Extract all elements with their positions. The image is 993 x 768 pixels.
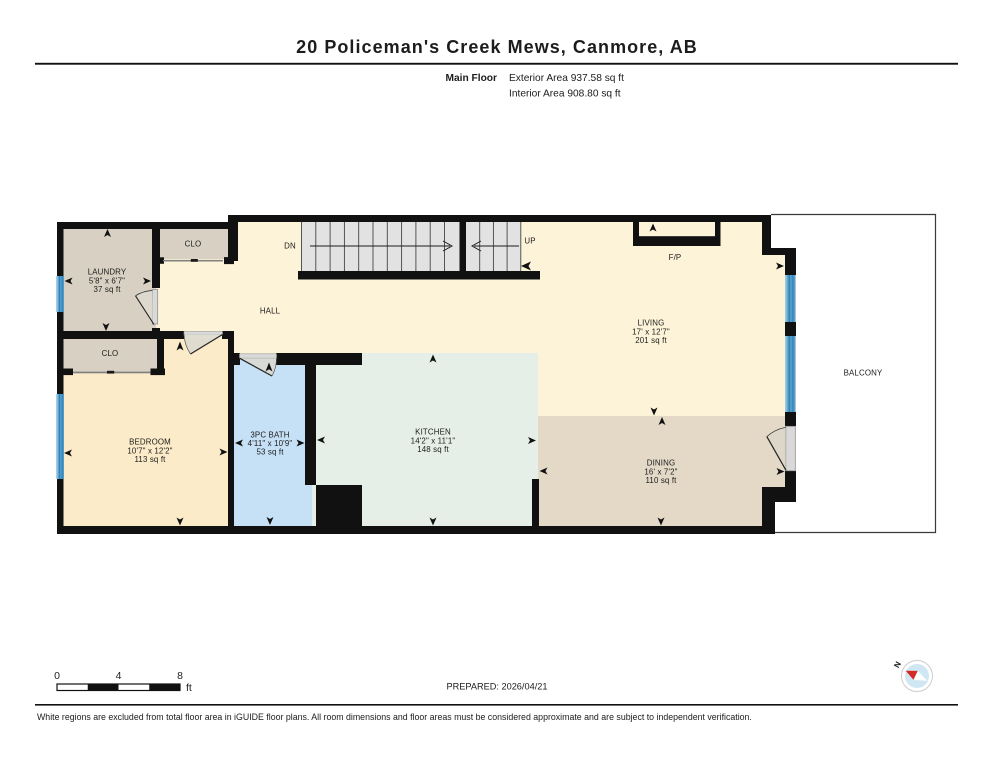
svg-text:53 sq ft: 53 sq ft — [256, 448, 284, 457]
svg-text:CLO: CLO — [102, 349, 119, 358]
svg-text:UP: UP — [524, 237, 535, 246]
svg-text:LAUNDRY: LAUNDRY — [88, 268, 127, 277]
svg-text:Exterior Area 937.58 sq ft: Exterior Area 937.58 sq ft — [509, 73, 624, 84]
svg-text:LIVING: LIVING — [638, 319, 665, 328]
svg-text:148 sq ft: 148 sq ft — [417, 445, 449, 454]
svg-text:0: 0 — [54, 670, 60, 682]
svg-text:DINING: DINING — [647, 459, 676, 468]
svg-text:White regions are excluded fro: White regions are excluded from total fl… — [37, 712, 752, 722]
svg-text:113 sq ft: 113 sq ft — [134, 455, 166, 464]
svg-text:HALL: HALL — [260, 307, 281, 316]
svg-text:Interior Area 908.80 sq ft: Interior Area 908.80 sq ft — [509, 89, 621, 100]
svg-text:110 sq ft: 110 sq ft — [645, 476, 677, 485]
svg-text:201 sq ft: 201 sq ft — [635, 336, 667, 345]
svg-text:CLO: CLO — [185, 240, 202, 249]
svg-text:Main Floor: Main Floor — [446, 73, 498, 84]
svg-text:4: 4 — [116, 670, 122, 682]
svg-text:DN: DN — [284, 242, 296, 251]
svg-text:ft: ft — [186, 682, 192, 694]
svg-text:37 sq ft: 37 sq ft — [93, 285, 121, 294]
svg-text:F/P: F/P — [669, 253, 682, 262]
svg-text:20 Policeman's Creek Mews, Can: 20 Policeman's Creek Mews, Canmore, AB — [296, 37, 698, 57]
svg-text:BALCONY: BALCONY — [844, 369, 883, 378]
svg-text:BEDROOM: BEDROOM — [129, 438, 171, 447]
svg-text:KITCHEN: KITCHEN — [415, 428, 451, 437]
svg-text:8: 8 — [177, 670, 183, 682]
svg-text:PREPARED: 2026/04/21: PREPARED: 2026/04/21 — [447, 682, 548, 692]
